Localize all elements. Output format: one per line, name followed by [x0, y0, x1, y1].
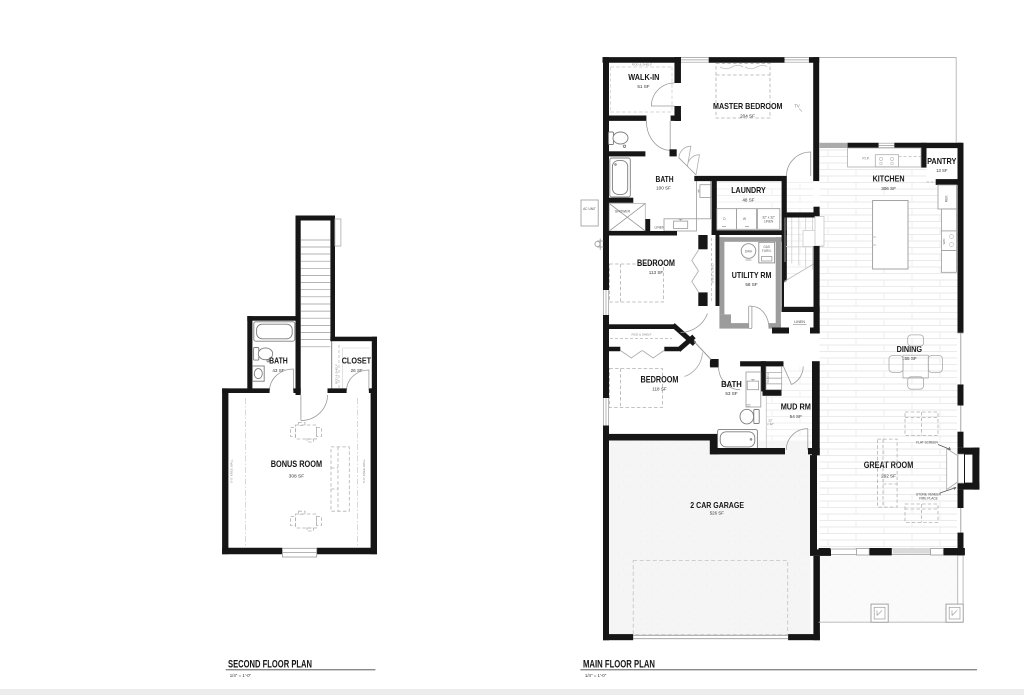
svg-text:5'-0" KNEE WALL: 5'-0" KNEE WALL — [362, 459, 366, 483]
svg-text:BONUS ROOM: BONUS ROOM — [271, 458, 323, 469]
svg-text:REF.: REF. — [945, 195, 949, 202]
svg-text:ROD & SHELF: ROD & SHELF — [334, 364, 338, 384]
svg-text:100 SF: 100 SF — [656, 186, 671, 191]
svg-text:PANTRY: PANTRY — [927, 157, 957, 166]
svg-text:204 SF: 204 SF — [740, 114, 755, 119]
svg-text:TV: TV — [794, 104, 800, 109]
svg-text:118 SF: 118 SF — [652, 387, 667, 392]
svg-text:AC UNIT: AC UNIT — [583, 207, 596, 211]
svg-text:BEDROOM: BEDROOM — [637, 258, 675, 268]
svg-text:WALK-IN: WALK-IN — [628, 73, 659, 82]
svg-text:FIRE PLACE: FIRE PLACE — [919, 497, 938, 501]
svg-text:UTILITY RM: UTILITY RM — [732, 271, 772, 280]
svg-text:SECOND FLOOR PLAN: SECOND FLOOR PLAN — [228, 659, 312, 671]
svg-text:W/O: W/O — [942, 238, 946, 245]
svg-text:LINEN: LINEN — [655, 225, 666, 229]
svg-text:526 SF: 526 SF — [710, 511, 724, 516]
svg-text:LINEN: LINEN — [764, 220, 774, 224]
svg-text:1/4" = 1'-0": 1/4" = 1'-0" — [585, 673, 607, 678]
svg-text:BATH: BATH — [656, 174, 674, 184]
svg-text:SHOWER: SHOWER — [615, 209, 631, 213]
svg-text:ROD & SHELF: ROD & SHELF — [632, 63, 652, 67]
svg-text:113 SF: 113 SF — [649, 270, 664, 275]
svg-text:13 SF: 13 SF — [936, 168, 948, 173]
svg-text:FURN.: FURN. — [762, 249, 772, 253]
svg-text:58 SF: 58 SF — [745, 282, 757, 287]
svg-text:26 SF: 26 SF — [351, 368, 363, 373]
svg-text:x 32": x 32" — [767, 422, 774, 426]
svg-text:54 SF: 54 SF — [790, 414, 802, 419]
svg-text:MAIN FLOOR PLAN: MAIN FLOOR PLAN — [583, 659, 655, 671]
svg-text:CLOSET: CLOSET — [342, 357, 371, 366]
svg-text:5'-0" KNEE WALL: 5'-0" KNEE WALL — [230, 459, 234, 483]
svg-text:BENCH: BENCH — [766, 373, 770, 383]
svg-text:SHELF & ROD: SHELF & ROD — [711, 263, 715, 284]
svg-text:155 SF: 155 SF — [902, 356, 917, 361]
svg-text:306 SF: 306 SF — [881, 186, 896, 191]
svg-text:GREAT ROOM: GREAT ROOM — [864, 460, 914, 471]
svg-text:43 SF: 43 SF — [272, 368, 284, 373]
svg-text:53 SF: 53 SF — [725, 391, 737, 396]
svg-text:ROD & SHELF: ROD & SHELF — [631, 332, 651, 336]
svg-text:MASTER BEDROOM: MASTER BEDROOM — [713, 101, 783, 111]
svg-text:MUD RM: MUD RM — [781, 402, 811, 412]
svg-text:LINEN: LINEN — [794, 320, 805, 324]
svg-text:KITCHEN: KITCHEN — [873, 174, 905, 183]
svg-text:48 SF: 48 SF — [742, 198, 754, 203]
svg-text:DWH: DWH — [745, 250, 753, 254]
svg-text:1/4" = 1'-0": 1/4" = 1'-0" — [230, 673, 252, 678]
svg-text:2 CAR GARAGE: 2 CAR GARAGE — [690, 501, 744, 510]
svg-text:BATH: BATH — [269, 357, 288, 366]
svg-text:51 SF: 51 SF — [637, 84, 649, 89]
svg-text:308 SF: 308 SF — [289, 474, 305, 480]
svg-text:LAUNDRY: LAUNDRY — [731, 186, 766, 195]
svg-text:BEDROOM: BEDROOM — [641, 375, 679, 385]
svg-text:BATH: BATH — [721, 379, 742, 389]
svg-text:P.I.P.: P.I.P. — [863, 156, 870, 160]
svg-text:FLAT SCREEN: FLAT SCREEN — [916, 441, 938, 445]
